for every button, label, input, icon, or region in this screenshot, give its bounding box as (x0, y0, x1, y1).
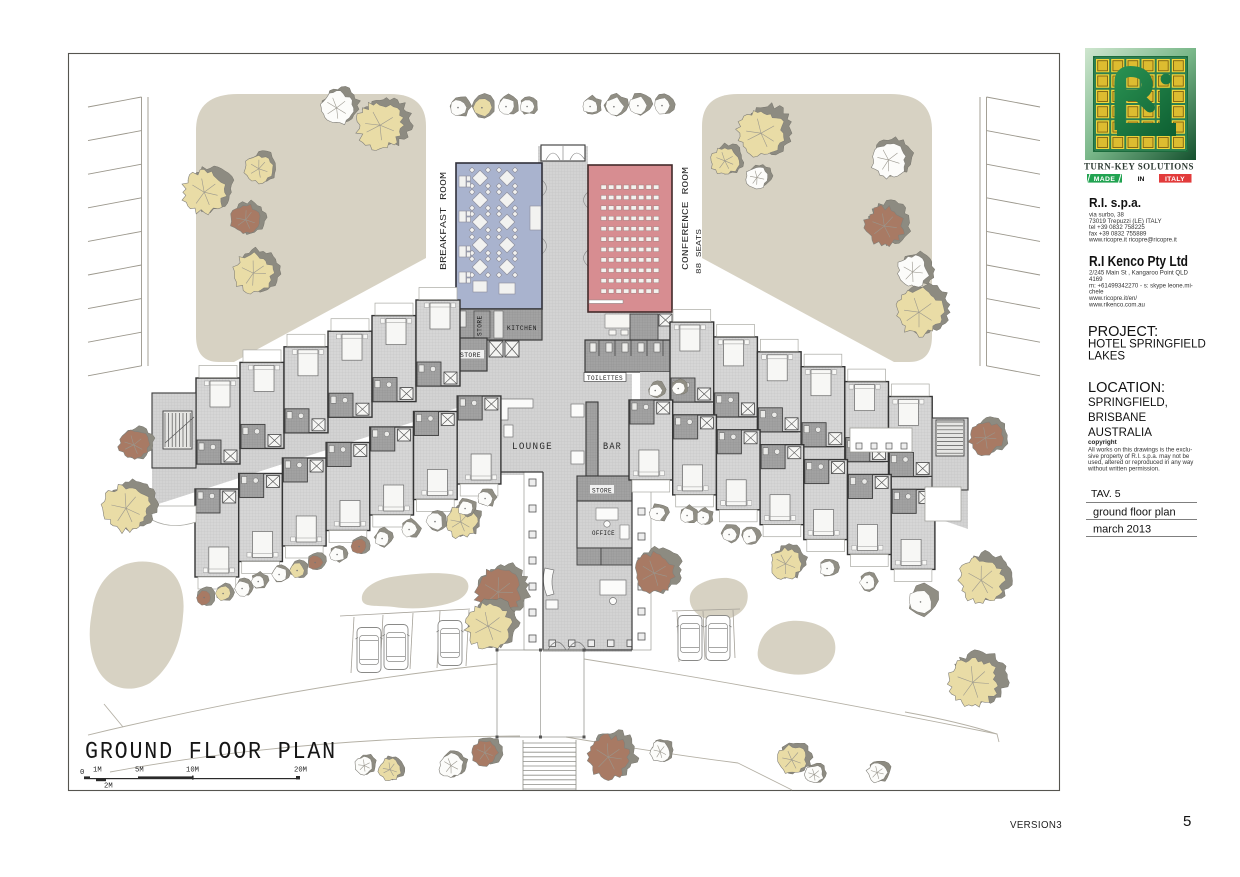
svg-text:BREAKFAST ROOM: BREAKFAST ROOM (439, 172, 449, 270)
svg-text:TAV. 5: TAV. 5 (1091, 488, 1121, 500)
svg-text:STORE: STORE (477, 315, 484, 336)
svg-text:STORE: STORE (460, 352, 481, 359)
svg-text:VERSION3: VERSION3 (1010, 819, 1062, 831)
svg-text:BAR: BAR (603, 442, 622, 453)
svg-text:SPRINGFIELD,: SPRINGFIELD, (1088, 397, 1168, 409)
svg-text:R.I. s.p.a.: R.I. s.p.a. (1089, 195, 1141, 210)
svg-text:ground floor plan: ground floor plan (1093, 507, 1176, 519)
svg-text:www.rikenco.com.au: www.rikenco.com.au (1088, 302, 1145, 309)
svg-text:1M: 1M (93, 767, 102, 775)
svg-text:LAKES: LAKES (1088, 351, 1125, 363)
svg-text:OFFICE: OFFICE (592, 530, 615, 537)
svg-text:TOILETTES: TOILETTES (587, 375, 623, 382)
svg-text:www.ricopre.it ricopre@rico: www.ricopre.it ricopre@ricopre.it (1088, 237, 1177, 244)
svg-text:STORE: STORE (592, 488, 612, 495)
svg-text:10M: 10M (186, 767, 199, 775)
svg-text:5: 5 (1183, 813, 1191, 830)
svg-text:GROUND FLOOR PLAN: GROUND FLOOR PLAN (85, 739, 337, 766)
svg-text:AUSTRALIA: AUSTRALIA (1088, 427, 1152, 439)
svg-text:88 SEATS: 88 SEATS (696, 228, 704, 274)
svg-text:LOCATION:: LOCATION: (1088, 380, 1165, 396)
svg-text:BRISBANE: BRISBANE (1088, 412, 1146, 424)
svg-text:R.I Kenco Pty Ltd: R.I Kenco Pty Ltd (1089, 254, 1188, 270)
svg-text:0: 0 (80, 769, 84, 777)
svg-text:KITCHEN: KITCHEN (507, 325, 537, 333)
svg-text:MADE: MADE (1094, 176, 1116, 183)
svg-text:20M: 20M (294, 767, 307, 775)
svg-text:LOUNGE: LOUNGE (512, 442, 553, 453)
svg-text:HOTEL SPRINGFIELD: HOTEL SPRINGFIELD (1088, 339, 1206, 351)
svg-text:2/245 Main St , Kangaroo Point: 2/245 Main St , Kangaroo Point QLD (1089, 270, 1189, 277)
svg-text:IN: IN (1138, 176, 1145, 183)
svg-text:march 2013: march 2013 (1093, 524, 1151, 536)
svg-text:without written permission.: without written permission. (1087, 465, 1160, 472)
svg-text:2M: 2M (104, 783, 113, 791)
svg-text:5M: 5M (135, 767, 144, 775)
svg-text:ITALY: ITALY (1165, 176, 1185, 183)
svg-text:CONFERENCE ROOM: CONFERENCE ROOM (681, 167, 691, 270)
svg-text:TURN-KEY SOLUTIONS: TURN-KEY SOLUTIONS (1084, 162, 1194, 173)
svg-text:m: +61499342270 - s: skype le: m: +61499342270 - s: skype leone.mi- (1089, 282, 1193, 289)
svg-text:copyright: copyright (1088, 439, 1118, 446)
